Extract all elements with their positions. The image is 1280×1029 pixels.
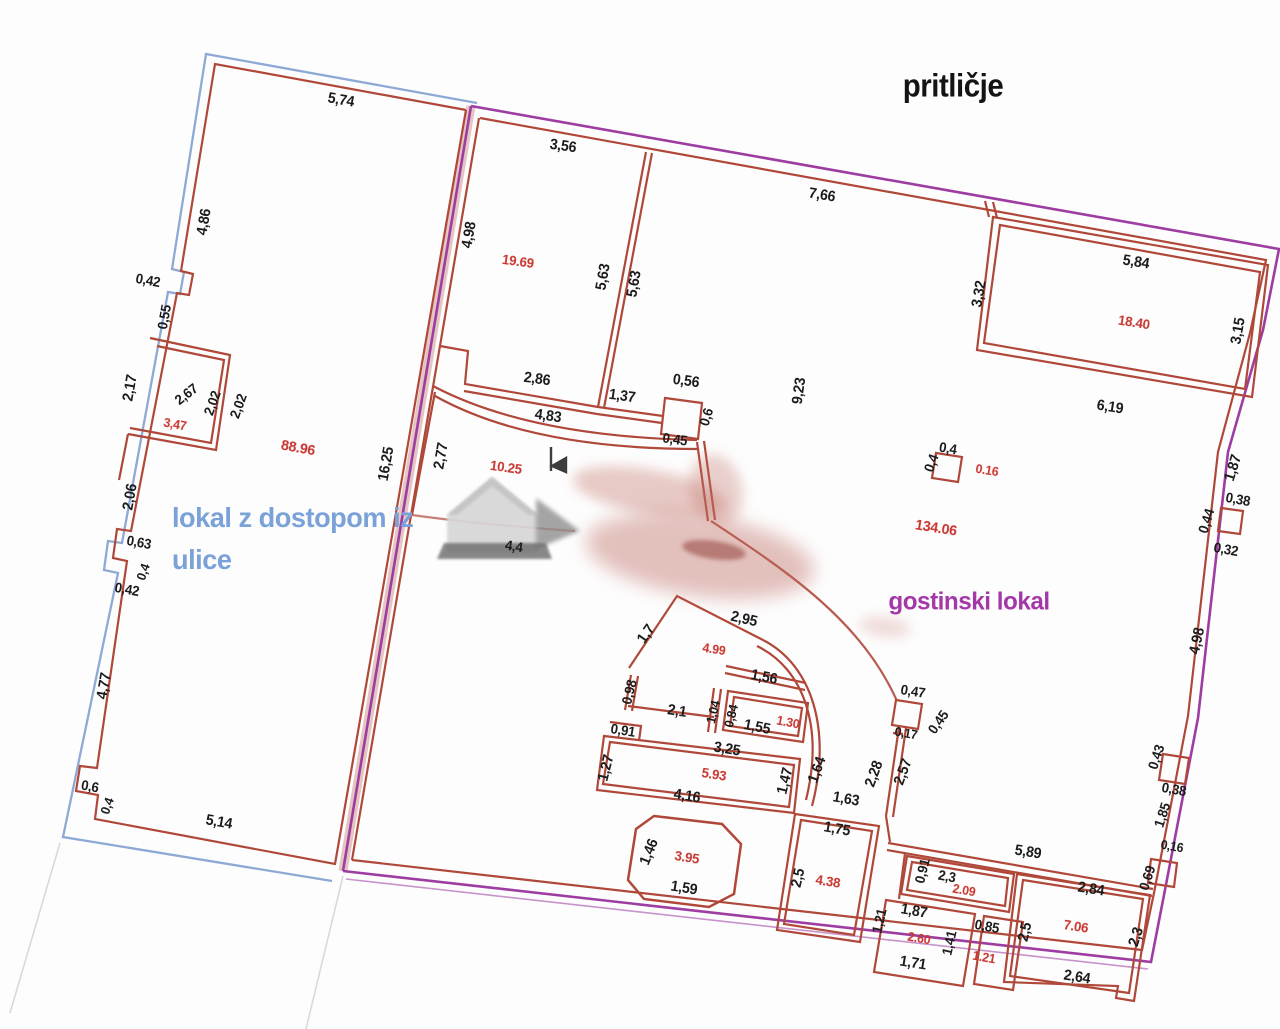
dimension-label: 3,56	[549, 136, 578, 157]
left-unit-label-line2: ulice	[172, 539, 413, 581]
dimension-label: 2,5	[788, 867, 809, 889]
dimension-label: 0,45	[662, 429, 689, 448]
floor-plan-canvas: 5,744,860,420,552,172,672,022,022,060,63…	[0, 0, 1280, 1029]
dimension-label: 1,21	[868, 907, 889, 935]
dimension-label: 9,23	[789, 377, 810, 406]
dimension-label: 5,63	[592, 262, 613, 291]
dimension-label: 2,3	[1125, 925, 1147, 948]
dimension-label: 2,1	[666, 701, 687, 721]
dimension-label: 3,25	[713, 739, 742, 760]
dimension-label: 0,17	[893, 724, 918, 743]
dimension-label: 1,56	[749, 666, 778, 688]
left-unit-label: lokal z dostopom iz ulice	[172, 497, 413, 581]
dimension-label: 2,17	[119, 373, 140, 402]
dimension-label: 2,28	[861, 759, 886, 790]
dimension-label: 5,14	[204, 811, 233, 832]
area-label: 10.25	[489, 457, 523, 477]
dimension-label: 1,47	[774, 766, 797, 796]
dimension-label: 4,86	[193, 207, 214, 236]
dimension-label: 0,32	[1212, 539, 1239, 559]
dimension-label: 7,66	[808, 185, 837, 206]
dimension-label: 0,98	[618, 678, 640, 706]
left-unit-label-line1: lokal z dostopom iz	[172, 497, 413, 539]
dimension-label: 1,64	[804, 755, 829, 786]
dimension-label: 4,83	[534, 406, 563, 427]
dimension-label: 1,55	[742, 716, 771, 738]
dimension-label: 5,89	[1014, 842, 1043, 863]
dimension-label: 2,64	[1063, 967, 1092, 988]
dimension-label: 1,75	[822, 818, 851, 839]
dimension-label: 3,15	[1227, 316, 1248, 345]
dimension-label: 4,16	[673, 786, 702, 807]
dimension-label: 0,85	[973, 916, 1000, 936]
dimension-label: 1,46	[636, 836, 662, 867]
dimension-label: 2,5	[1015, 921, 1036, 943]
dimension-label: 1,71	[899, 953, 928, 974]
dimension-label: 2,84	[1077, 879, 1106, 900]
dimension-label: 0,6	[696, 406, 716, 428]
dimension-label: 0,38	[1160, 779, 1187, 799]
area-label: 3.95	[674, 847, 701, 867]
area-label: 2.09	[951, 881, 976, 900]
dimension-label: 1,59	[670, 878, 699, 899]
dimension-label: 0,16	[1159, 837, 1184, 856]
dimension-label: 1,87	[1221, 453, 1245, 483]
dimension-label: 4,77	[93, 671, 114, 700]
dimension-label: 1,27	[595, 753, 618, 783]
dimension-label: 1,87	[899, 900, 928, 921]
dimension-label: 1,04	[703, 699, 723, 725]
area-label: 5.93	[701, 764, 728, 784]
area-label: 1.30	[775, 712, 800, 731]
dimension-label: 0,91	[911, 857, 933, 885]
dimension-label: 4,98	[1186, 626, 1208, 656]
area-label: 2.60	[906, 929, 931, 948]
dimension-label: 1,37	[608, 386, 637, 407]
area-label: 4.38	[815, 871, 842, 891]
dimension-label: 2,02	[200, 389, 224, 418]
area-label: 88.96	[280, 437, 317, 460]
dimension-label: 0,56	[672, 371, 701, 392]
area-label: 0.16	[975, 461, 1000, 479]
dimension-label: 0,4	[133, 562, 153, 582]
dimension-label: 2,86	[523, 369, 552, 390]
dimension-label: 2,95	[729, 608, 759, 631]
dimension-label: 5,74	[326, 89, 355, 110]
area-label: 4.99	[702, 640, 727, 658]
area-label: 1.21	[971, 948, 996, 967]
dimension-label: 0,44	[1195, 507, 1218, 535]
dimension-label: 0,84	[721, 703, 741, 729]
dimension-label: 0,4	[920, 452, 941, 474]
dimension-label: 0,63	[125, 532, 152, 552]
area-label: 134.06	[914, 516, 958, 539]
dimension-label: 0,4	[938, 439, 958, 458]
dimension-label: 0,69	[1136, 864, 1159, 892]
dimension-label: 1,63	[831, 788, 860, 809]
dimension-label: 16,25	[375, 446, 398, 483]
dimension-label: 1,7	[634, 621, 659, 646]
area-label: 18.40	[1117, 312, 1151, 333]
dimension-label: 0,91	[610, 720, 637, 740]
dimension-label: 5,63	[623, 269, 644, 298]
dimension-label: 0,42	[113, 579, 140, 599]
dimension-label: 2,67	[171, 380, 200, 408]
dimension-label: 4,4	[504, 537, 524, 556]
dimension-label: 3,32	[968, 279, 989, 308]
page-title: pritličje	[903, 68, 1004, 105]
area-label: 3,47	[162, 415, 187, 434]
dimension-label: 0,6	[80, 777, 100, 796]
dimension-label: 1,41	[938, 929, 959, 957]
dimension-label: 0,4	[97, 796, 117, 816]
dimension-label: 5,84	[1122, 252, 1151, 273]
dimension-label: 6,19	[1096, 397, 1125, 418]
dimension-label: 0,45	[924, 707, 951, 736]
area-label: 7.06	[1063, 916, 1090, 936]
dimension-label: 0,42	[134, 270, 161, 290]
dimension-label: 0,47	[900, 681, 927, 701]
dimension-label: 0,43	[1145, 743, 1168, 771]
dimension-label: 0,38	[1224, 489, 1251, 509]
right-unit-label: gostinski lokal	[888, 588, 1049, 617]
dimension-label: 0,55	[154, 303, 174, 330]
area-label: 19.69	[501, 251, 535, 271]
dimension-label: 2,77	[430, 441, 451, 470]
dimension-label: 2,02	[226, 392, 250, 421]
dimension-label: 2,06	[119, 482, 140, 511]
dimension-label: 2,57	[890, 757, 915, 788]
dimension-label: 1,85	[1151, 801, 1174, 829]
dimension-label: 4,98	[458, 220, 479, 249]
